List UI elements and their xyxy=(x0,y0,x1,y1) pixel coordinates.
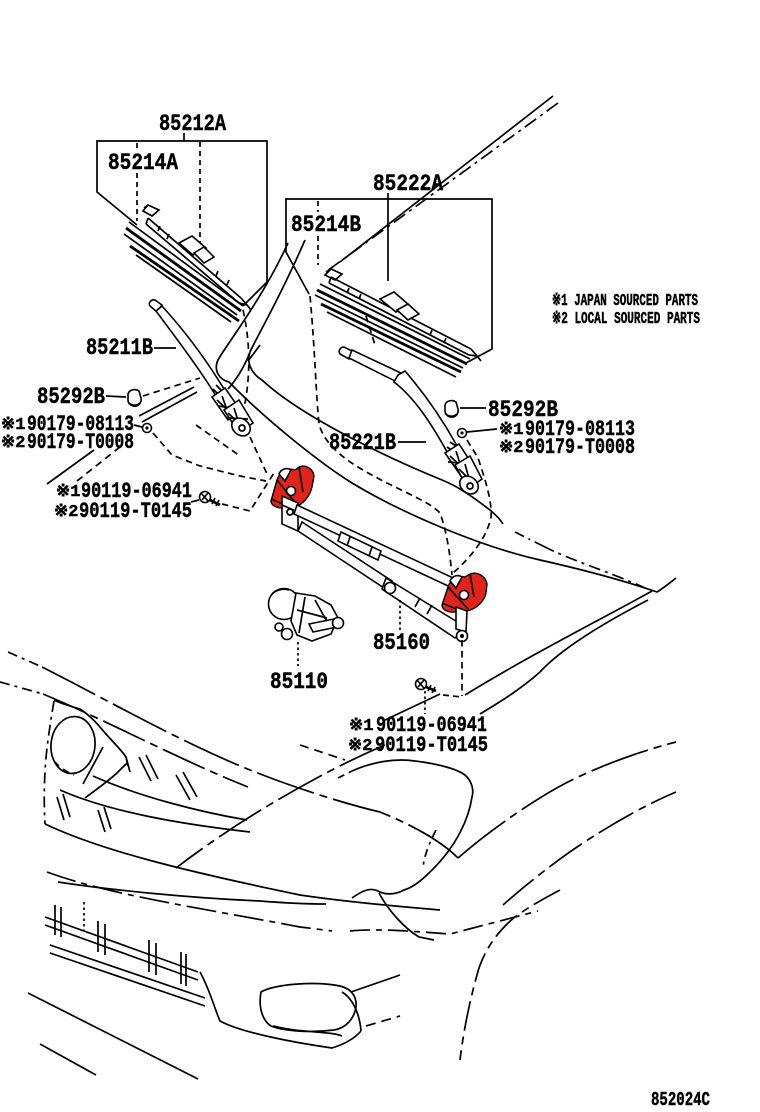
svg-text:90179-T0008: 90179-T0008 xyxy=(27,430,134,455)
svg-text:※1: ※1 xyxy=(56,483,80,502)
svg-text:90179-T0008: 90179-T0008 xyxy=(525,435,635,460)
svg-text:※2: ※2 xyxy=(54,503,78,522)
svg-text:※2: ※2 xyxy=(348,737,372,756)
svg-text:85221B: 85221B xyxy=(329,430,396,456)
svg-text:※1: ※1 xyxy=(499,421,523,440)
svg-text:85160: 85160 xyxy=(373,630,430,656)
svg-text:85211B: 85211B xyxy=(86,335,153,361)
svg-text:85212A: 85212A xyxy=(159,111,226,137)
svg-text:※1: ※1 xyxy=(349,717,373,736)
svg-text:85222A: 85222A xyxy=(373,171,443,197)
svg-text:※1: ※1 xyxy=(1,416,25,435)
svg-text:※2 LOCAL SOURCED PARTS: ※2 LOCAL SOURCED PARTS xyxy=(552,309,700,328)
svg-text:※1 JAPAN SOURCED PARTS: ※1 JAPAN SOURCED PARTS xyxy=(552,291,698,310)
svg-text:85292B: 85292B xyxy=(37,384,105,410)
svg-text:852024C: 852024C xyxy=(651,1089,710,1111)
svg-text:※2: ※2 xyxy=(499,439,523,458)
svg-text:90119-T0145: 90119-T0145 xyxy=(79,499,192,524)
svg-text:85110: 85110 xyxy=(270,669,328,695)
svg-text:90119-T0145: 90119-T0145 xyxy=(375,733,488,758)
svg-text:※2: ※2 xyxy=(1,434,25,453)
svg-text:85214A: 85214A xyxy=(108,150,178,176)
svg-text:85214B: 85214B xyxy=(291,212,361,238)
